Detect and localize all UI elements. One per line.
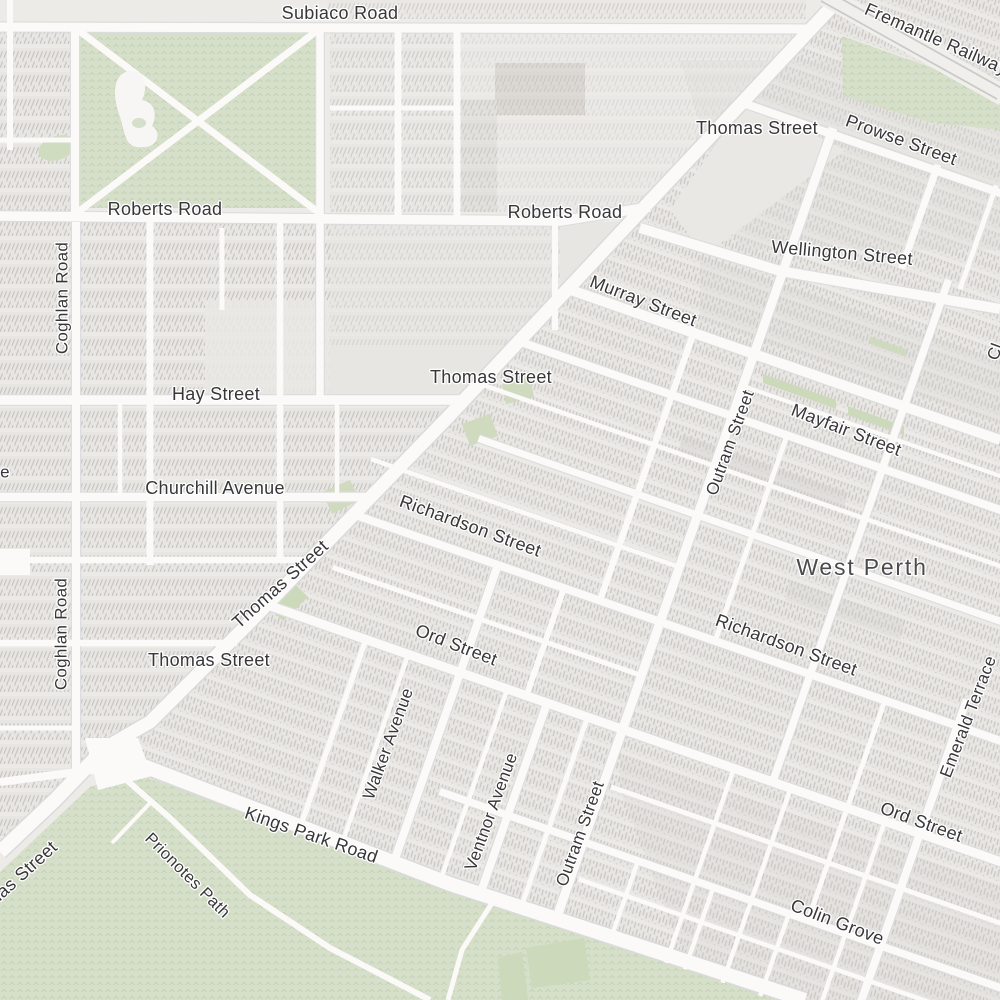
svg-text:Thomas Street: Thomas Street — [430, 367, 552, 387]
svg-text:Churchill Avenue: Churchill Avenue — [145, 478, 285, 498]
svg-text:Coghlan Road: Coghlan Road — [52, 242, 71, 354]
svg-text:Thomas Street: Thomas Street — [696, 118, 818, 138]
svg-text:Coghlan Road: Coghlan Road — [51, 578, 70, 690]
svg-text:Roberts Road: Roberts Road — [108, 199, 223, 219]
svg-text:Subiaco Road: Subiaco Road — [282, 3, 399, 23]
svg-text:e: e — [0, 462, 10, 481]
svg-text:West Perth: West Perth — [796, 554, 927, 580]
svg-text:Thomas Street: Thomas Street — [148, 650, 270, 670]
svg-text:Hay Street: Hay Street — [172, 384, 260, 404]
svg-text:Roberts Road: Roberts Road — [508, 202, 623, 222]
